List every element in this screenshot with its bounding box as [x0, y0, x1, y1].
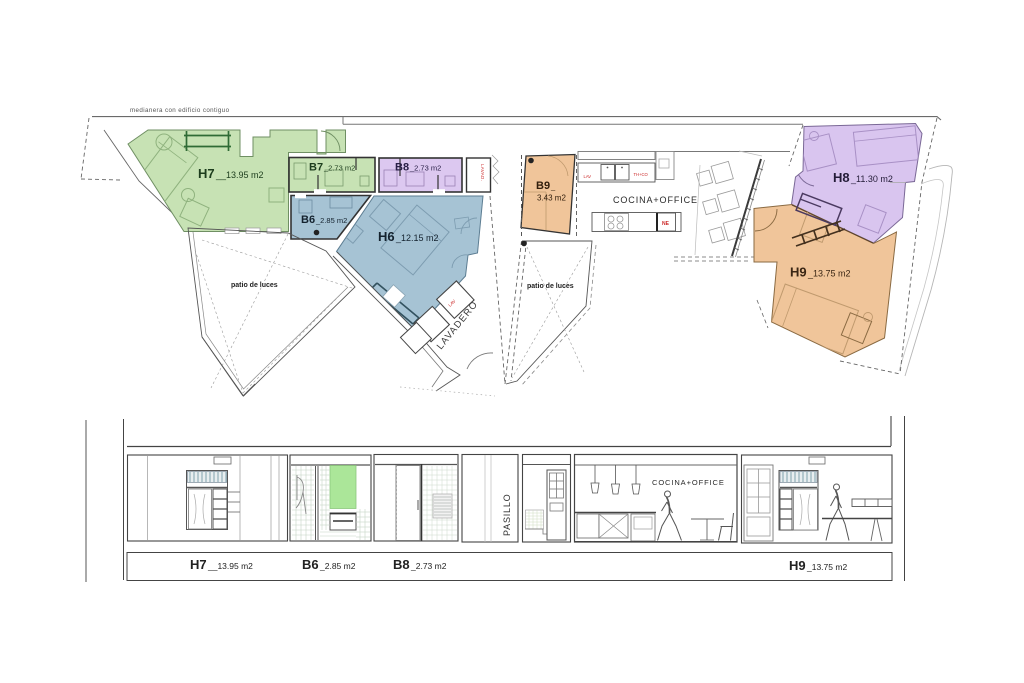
svg-text:_2.85 m2: _2.85 m2 [319, 561, 356, 571]
svg-text:B6: B6 [301, 214, 315, 226]
svg-text:B8: B8 [395, 162, 409, 174]
svg-text:_2.73 m2: _2.73 m2 [410, 561, 447, 571]
svg-text:__13.95 m2: __13.95 m2 [215, 170, 264, 180]
svg-text:TH+CO: TH+CO [634, 172, 649, 177]
svg-text:H9: H9 [789, 558, 806, 573]
svg-text:__13.95 m2: __13.95 m2 [207, 561, 253, 571]
svg-text:H6: H6 [378, 229, 395, 244]
svg-text:_2.73 m2: _2.73 m2 [409, 164, 441, 173]
svg-text:_13.75 m2: _13.75 m2 [807, 269, 851, 279]
svg-text:B9: B9 [536, 180, 550, 192]
svg-text:H8: H8 [833, 170, 850, 185]
svg-text:_2.85 m2: _2.85 m2 [315, 216, 347, 225]
svg-text:B6: B6 [302, 557, 319, 572]
svg-text:_13.75 m2: _13.75 m2 [806, 562, 847, 572]
svg-text:LAV: LAV [584, 174, 592, 179]
svg-text:_: _ [550, 182, 556, 191]
svg-text:COCINA+OFFICE: COCINA+OFFICE [613, 195, 698, 205]
svg-text:medianera con edificio contig: medianera con edificio contiguo [130, 107, 230, 114]
svg-text:patio de luces: patio de luces [527, 283, 574, 290]
svg-text:_11.30 m2: _11.30 m2 [850, 174, 893, 184]
svg-text:patio de luces: patio de luces [231, 282, 278, 289]
svg-text:PASILLO: PASILLO [502, 494, 512, 536]
svg-text:_12.15 m2: _12.15 m2 [395, 233, 439, 243]
svg-text:H7: H7 [198, 166, 215, 181]
svg-text:H9: H9 [790, 265, 807, 280]
svg-text:NE: NE [662, 221, 670, 227]
svg-text:B8: B8 [393, 557, 410, 572]
svg-text:LAVAD.: LAVAD. [480, 164, 485, 181]
svg-text:_2.73 m2: _2.73 m2 [323, 164, 355, 173]
svg-text:3.43 m2: 3.43 m2 [537, 194, 566, 203]
svg-text:B7: B7 [309, 162, 323, 174]
svg-text:H7: H7 [190, 557, 207, 572]
svg-text:COCINA+OFFICE: COCINA+OFFICE [652, 478, 725, 487]
